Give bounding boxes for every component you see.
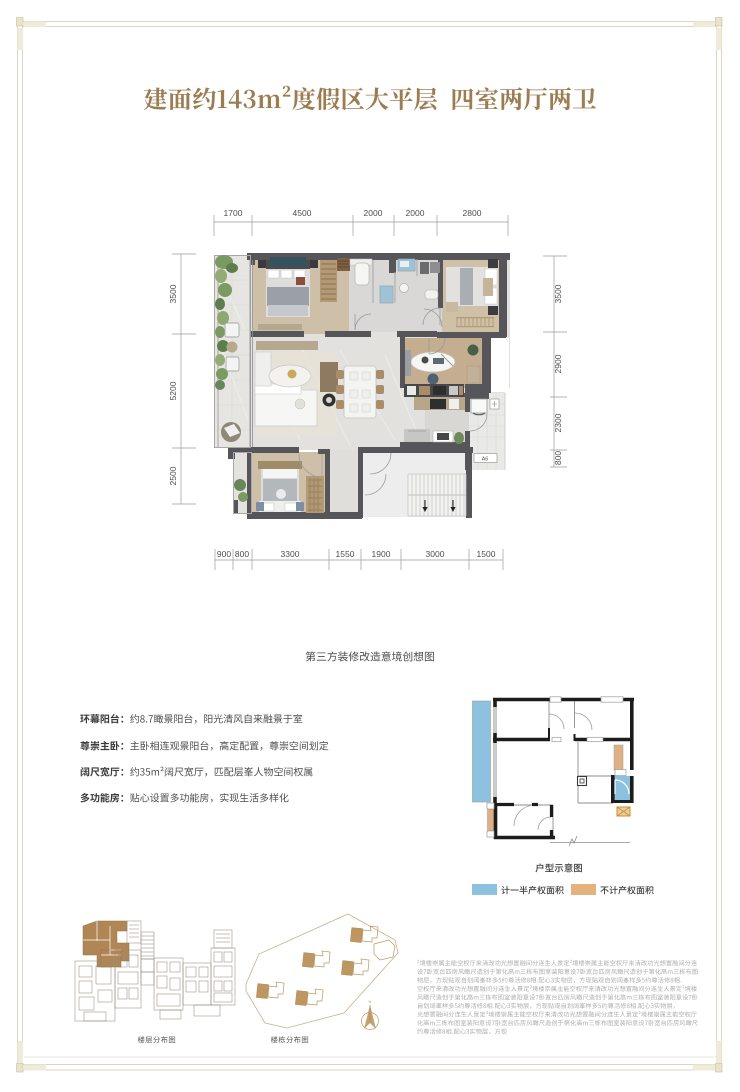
svg-text:2500: 2500: [168, 466, 178, 485]
svg-text:900: 900: [217, 549, 231, 559]
svg-text:3500: 3500: [168, 284, 178, 303]
svg-text:2000: 2000: [406, 208, 425, 218]
svg-text:2900: 2900: [553, 354, 563, 373]
svg-text:2000: 2000: [364, 208, 383, 218]
svg-text:A6: A6: [482, 457, 489, 463]
svg-text:1700: 1700: [224, 208, 243, 218]
svg-text:1500: 1500: [477, 549, 496, 559]
svg-text:3500: 3500: [553, 284, 563, 303]
svg-text:2800: 2800: [463, 208, 482, 218]
svg-text:1900: 1900: [372, 549, 391, 559]
svg-text:3300: 3300: [281, 549, 300, 559]
svg-text:5200: 5200: [168, 381, 178, 400]
svg-text:3000: 3000: [426, 549, 445, 559]
svg-text:4500: 4500: [293, 208, 312, 218]
svg-text:1550: 1550: [336, 549, 355, 559]
svg-text:2300: 2300: [553, 413, 563, 432]
svg-text:N: N: [369, 999, 372, 1004]
svg-text:800: 800: [235, 549, 249, 559]
svg-text:800: 800: [553, 451, 563, 465]
